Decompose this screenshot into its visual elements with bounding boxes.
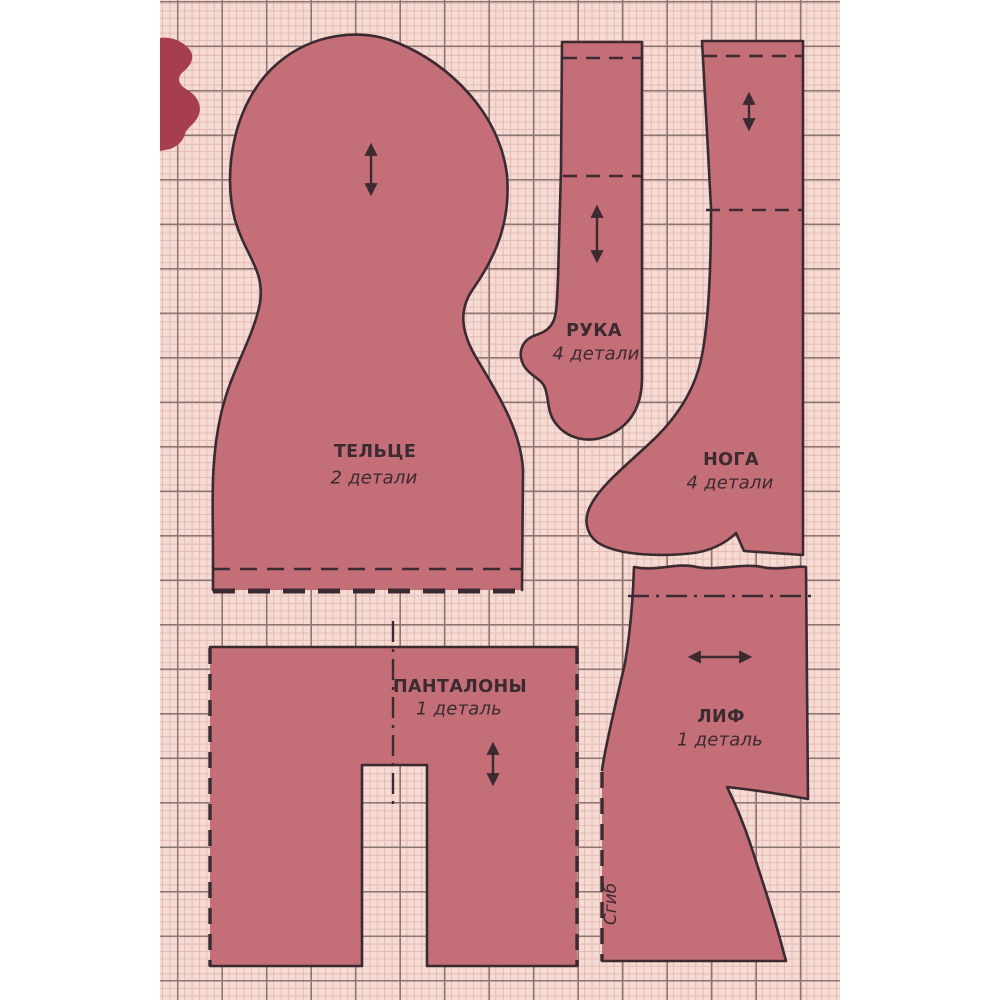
body-piece-name: ТЕЛЬЦЕ bbox=[334, 442, 416, 462]
body-piece-quantity: 2 детали bbox=[330, 468, 417, 489]
bodice-piece-quantity: 1 деталь bbox=[677, 730, 763, 751]
arm-piece-quantity: 4 детали bbox=[552, 344, 639, 365]
pantaloons-piece-name: ПАНТАЛОНЫ bbox=[393, 677, 527, 697]
fold-line-label: Сгиб bbox=[601, 883, 621, 925]
pantaloons-piece-quantity: 1 деталь bbox=[416, 699, 502, 720]
scrap-fabric-shape bbox=[160, 38, 200, 151]
arm-piece-name: РУКА bbox=[566, 321, 622, 341]
leg-piece-name: НОГА bbox=[703, 450, 759, 470]
leg-piece-quantity: 4 детали bbox=[686, 473, 773, 494]
piece-body-shape bbox=[213, 35, 523, 590]
piece-bodice-shape bbox=[602, 566, 808, 961]
pattern-scan-page: { "title": "Выкройка куклы (doll sewing … bbox=[0, 0, 1000, 1000]
pattern-drawing bbox=[0, 0, 1000, 1000]
bodice-piece-name: ЛИФ bbox=[697, 707, 745, 727]
pattern-sheet: ТЕЛЬЦЕ 2 детали РУКА 4 детали НОГА 4 дет… bbox=[0, 0, 1000, 1000]
